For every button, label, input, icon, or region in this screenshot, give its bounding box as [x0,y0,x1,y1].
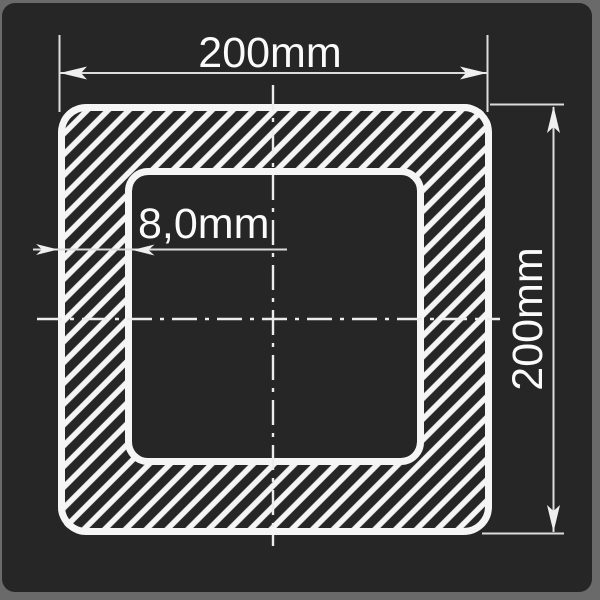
thickness-dimension-label: 8,0mm [138,200,269,248]
drawing-canvas: 200mm 200mm 8,0mm [0,0,600,600]
height-dimension-label: 200mm [504,247,552,390]
width-dimension-label: 200mm [198,29,341,77]
profile-cross-section-drawing: 200mm 200mm 8,0mm [0,0,600,600]
